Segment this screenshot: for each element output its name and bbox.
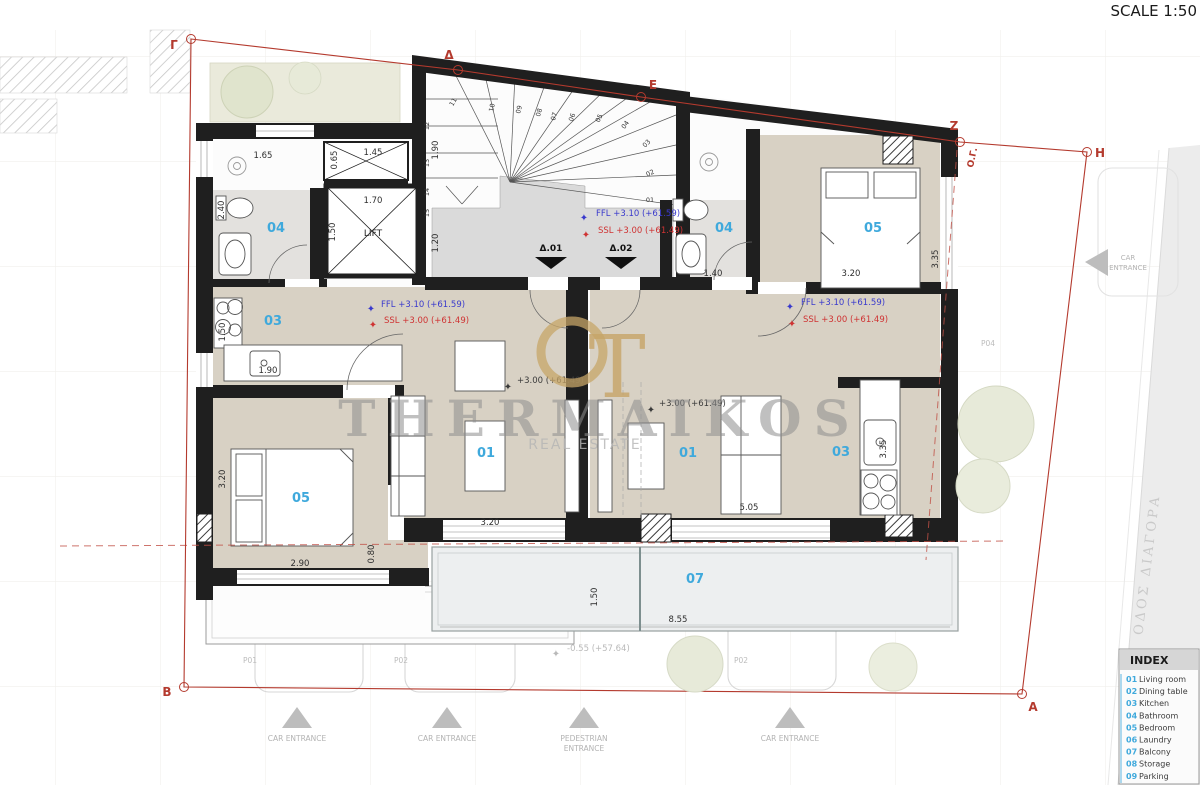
stair-tread-number: 01 — [646, 196, 654, 204]
room-number-label: 04 — [715, 221, 733, 236]
level-annotation: SSL +3.00 (+61.49) — [803, 315, 888, 325]
index-item-number: 06 — [1126, 736, 1138, 745]
boundary-vertex-label: Γ — [170, 38, 178, 52]
stair-tread-number: 10 — [487, 103, 497, 113]
parking-spot-label: P02 — [394, 656, 408, 665]
index-item-number: 08 — [1126, 760, 1138, 769]
room-number-label: 05 — [864, 221, 882, 236]
room-number-label: 01 — [679, 446, 697, 461]
scale-label: SCALE 1:50 — [1110, 2, 1197, 20]
entrance-label: CAR ENTRANCE — [268, 734, 327, 743]
level-annotation: FFL +3.10 (+61.59) — [596, 209, 680, 219]
level-marker-icon: ✦ — [786, 302, 794, 313]
dimension-label: 1.65 — [254, 151, 273, 161]
dimension-label: 1.90 — [431, 141, 441, 160]
index-item-number: 01 — [1126, 675, 1138, 684]
stair-tread-number: 14 — [423, 188, 431, 196]
room-number-label: 04 — [267, 221, 285, 236]
index-item-number: 05 — [1126, 723, 1138, 732]
index-item-label: Living room — [1139, 675, 1186, 684]
level-annotation: -0.55 (+57.64) — [567, 644, 630, 654]
level-marker-icon: ✦ — [552, 649, 560, 660]
index-item-label: Bathroom — [1139, 711, 1179, 720]
level-marker-icon: ✦ — [788, 319, 796, 330]
index-item-label: Kitchen — [1139, 699, 1169, 708]
door-label: Δ.01 — [540, 244, 563, 254]
index-item-number: 04 — [1126, 711, 1138, 720]
pillow — [236, 500, 262, 542]
dimension-label: 1.90 — [259, 366, 278, 376]
floor-plan-drawing: ΟΔΟΣ ΔΙΑΓΟΡΑ — [0, 0, 1200, 785]
dimension-label: 8.55 — [669, 615, 688, 625]
toilet-bowl — [684, 200, 708, 220]
dimension-label: 3.20 — [842, 269, 861, 279]
index-item-number: 07 — [1126, 748, 1137, 757]
dimension-label: 3.35 — [931, 250, 941, 269]
dimension-label: 3.20 — [218, 470, 228, 489]
level-marker-icon: ✦ — [369, 320, 377, 331]
stair-tread-number: 13 — [423, 159, 431, 167]
pillow — [874, 172, 916, 198]
index-panel: INDEX 01Living room02Dining table03Kitch… — [1119, 649, 1199, 784]
boundary-vertex-label: E — [649, 78, 657, 92]
index-item-label: Laundry — [1139, 736, 1172, 745]
level-marker-icon: ✦ — [580, 213, 588, 224]
entrance-label: PEDESTRIAN — [560, 734, 607, 743]
index-item-label: Balcony — [1139, 748, 1171, 757]
index-item-number: 09 — [1126, 772, 1138, 781]
dimension-label: 2.40 — [217, 201, 227, 220]
dimension-label: 1.50 — [590, 588, 600, 607]
level-marker-icon: ✦ — [367, 304, 375, 315]
side-entrance-label-line2: ENTRANCE — [1109, 264, 1147, 272]
boundary-vertex-label: A — [1028, 700, 1038, 714]
dimension-label: 1.40 — [704, 269, 723, 279]
parking-spot-label: P01 — [243, 656, 257, 665]
stair-tread-number: 15 — [423, 209, 431, 217]
dimension-label: 1.50 — [218, 323, 228, 342]
dimension-label: 0.80 — [367, 545, 377, 564]
index-item-label: Dining table — [1139, 687, 1188, 696]
parking-spot-label: P02 — [734, 656, 748, 665]
entrance-label: CAR ENTRANCE — [761, 734, 820, 743]
index-item-label: Storage — [1139, 760, 1170, 769]
pillow — [826, 172, 868, 198]
boundary-vertex-label: Δ — [444, 48, 454, 62]
dimension-label: 1.70 — [364, 196, 383, 206]
dimension-label: 0.65 — [330, 151, 340, 170]
dimension-label: 3.35 — [879, 440, 889, 459]
boundary-vertex-label: B — [162, 685, 171, 699]
room-number-label: 01 — [477, 446, 495, 461]
side-entrance-label-line1: CAR — [1121, 254, 1136, 262]
room-number-label: 07 — [686, 572, 704, 587]
dimension-label: 3.20 — [481, 518, 500, 528]
index-title: INDEX — [1130, 654, 1169, 667]
boundary-vertex-label: Z — [950, 119, 959, 133]
floor-plan-page: ΟΔΟΣ ΔΙΑΓΟΡΑ — [0, 0, 1200, 785]
toilet-bowl — [227, 198, 253, 218]
sink — [219, 233, 251, 275]
level-annotation: SSL +3.00 (+61.49) — [598, 226, 683, 236]
garden-beds — [210, 62, 400, 122]
sink — [676, 234, 706, 274]
entrance-label: CAR ENTRANCE — [418, 734, 477, 743]
door-label: Δ.02 — [610, 244, 633, 254]
level-marker-icon: ✦ — [582, 230, 590, 241]
index-item-number: 03 — [1126, 699, 1137, 708]
level-annotation: FFL +3.10 (+61.59) — [801, 298, 885, 308]
dining-table — [455, 341, 505, 391]
level-annotation: FFL +3.10 (+61.59) — [381, 300, 465, 310]
dimension-label: 1.50 — [328, 223, 338, 242]
index-item-label: Bedroom — [1139, 723, 1175, 732]
balcony-07 — [432, 547, 958, 631]
dimension-label: 2.90 — [291, 559, 310, 569]
index-item-label: Parking — [1139, 772, 1169, 781]
watermark-subtitle: REAL ESTATE — [528, 437, 642, 453]
dimension-label: 5.05 — [740, 503, 759, 513]
room-number-label: 03 — [264, 314, 282, 329]
parking-spot-label: P04 — [981, 339, 995, 348]
room-number-label: 05 — [292, 491, 310, 506]
lift-label: LIFT — [364, 229, 383, 239]
pillow — [236, 454, 262, 496]
entrance-label: ENTRANCE — [564, 744, 605, 753]
dimension-label: 1.45 — [364, 148, 383, 158]
dimension-label: 1.20 — [431, 234, 441, 253]
index-item-number: 02 — [1126, 687, 1137, 696]
boundary-vertex-label: H — [1095, 146, 1105, 160]
level-annotation: SSL +3.00 (+61.49) — [384, 316, 469, 326]
stair-tread-number: 12 — [423, 122, 431, 130]
